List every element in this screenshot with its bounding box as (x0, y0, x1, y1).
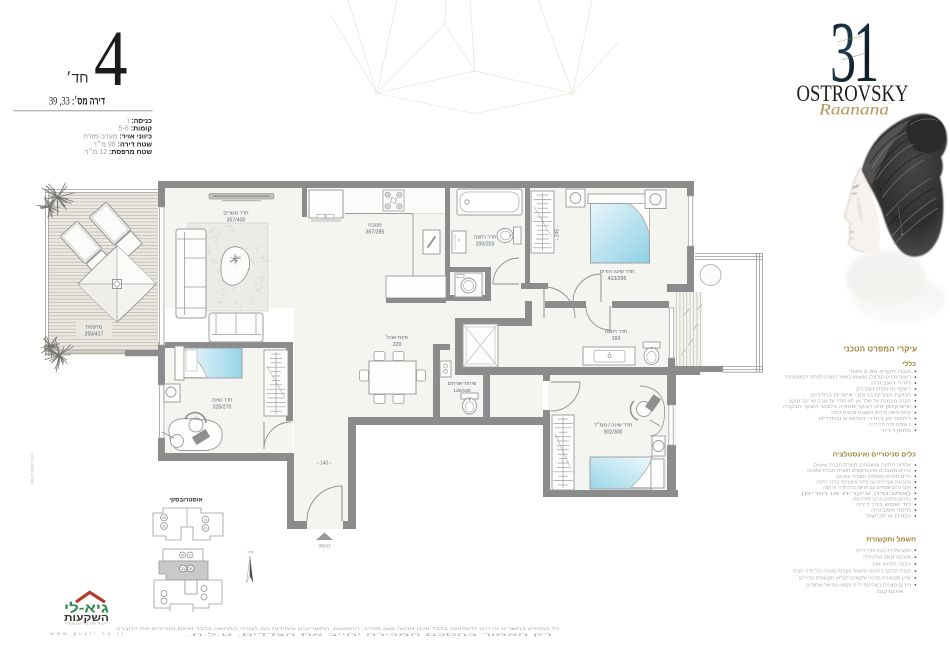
svg-text:39: 39 (189, 567, 193, 571)
svg-text:חדר שינה: חדר שינה (212, 398, 233, 404)
svg-text:שירותי אורחים: שירותי אורחים (448, 382, 477, 387)
svg-text:תקרה מונמכת על שלד עץ לא חודר: תקרה מונמכת על שלד עץ לא חודר עד גובה שר… (789, 398, 911, 403)
svg-text:חדר שינה / ממ״ד: חדר שינה / ממ״ד (594, 422, 632, 429)
svg-text:כיווני אויר: מערב-מזרח: כיווני אויר: מערב-מזרח (83, 134, 152, 141)
svg-text:כניסה: ו': כניסה: ו' (126, 118, 152, 125)
svg-text:גובה תקרה 2.90 מטר: גובה תקרה 2.90 מטר (849, 369, 911, 374)
svg-text:עיקרי המפרט הטכני: עיקרי המפרט הטכני (844, 345, 917, 354)
svg-text:- 245 -: - 245 - (555, 225, 561, 240)
svg-text:40: 40 (204, 527, 208, 531)
svg-text:קלות גישה נדרתו העגנות צבעות ב: קלות גישה נדרתו העגנות צבעות בחול (831, 410, 911, 415)
svg-text:220: 220 (393, 342, 402, 348)
svg-text:357/285: 357/285 (366, 230, 385, 236)
svg-text:אמבטיה אקרילית עם מילוי איזוטר: אמבטיה אקרילית עם מילוי איזוטרמי בחדר רח… (816, 479, 911, 484)
svg-text:קומות: 5-6: קומות: 5-6 (119, 126, 153, 133)
svg-text:הסקת תנורים ברוחבי איזורים בחד: הסקת תנורים ברוחבי איזורים בחדרים (811, 392, 911, 397)
svg-text:302/300: 302/300 (604, 430, 623, 436)
svg-text:357/400: 357/400 (227, 218, 246, 224)
svg-text:מרפסת: מרפסת (86, 325, 103, 331)
svg-text:אינטרקום טלויזיה: אינטרקום טלויזיה (863, 555, 911, 560)
svg-text:413/295: 413/295 (608, 276, 627, 282)
svg-text:חיפוי אמבטיה: חיפוי אמבטיה (871, 508, 911, 513)
svg-text:41: 41 (188, 554, 192, 558)
svg-text:ארון תקשורת מרכזי ותקאים לערוץ: ארון תקשורת מרכזי ותקאים לערוץ תקשורת הד… (799, 575, 911, 580)
svg-text:חשמל ותקשורת: חשמל ותקשורת (866, 536, 916, 544)
svg-text:ריצוף גרניט פורצלן 80x80 באזור: ריצוף גרניט פורצלן 80x80 באזור רגעים לפת… (785, 375, 912, 380)
svg-text:שטח מרפסת: 12 מ״ר: שטח מרפסת: 12 מ״ר (85, 148, 153, 156)
svg-text:2 עמדות חניה לכל דירה: 2 עמדות חניה לכל דירה (869, 422, 911, 427)
svg-text:נקודת גז לבישול: נקודת גז לבישול (866, 513, 911, 518)
svg-text:נקודת הדלקה בלוחות החשמל ונקוד: נקודת הדלקה בלוחות החשמל ונקודות טעינה ב… (793, 569, 911, 574)
svg-text:ברזים מעוצבים ואינטרפוצים תוצר: ברזים מעוצבים ואינטרפוצים תוצרת חברת Gro… (807, 468, 911, 473)
svg-text:חד׳: חד׳ (66, 70, 88, 86)
svg-text:שטח דירה: 98 מ״ר: שטח דירה: 98 מ״ר (93, 140, 152, 148)
svg-text:ארגז כלים שטוחים עם מראה בכל ח: ארגז כלים שטוחים עם מראה בכל חדרי הרחצה (823, 485, 911, 490)
svg-text:חירים מצויים בשליטת ידית וקטעי: חירים מצויים בשליטת ידית וקטעי גמישה אחו… (806, 582, 911, 587)
svg-text:דלתות עץ בחדרי המיגונים ובחדרי: דלתות עץ בחדרי המיגונים ובחדרים (819, 416, 912, 421)
svg-text:250/417: 250/417 (85, 332, 104, 338)
svg-text:38: 38 (162, 516, 166, 520)
svg-text:אוסטרובסקי: אוסטרובסקי (169, 498, 202, 504)
svg-text:״הבית שלך בידיים טובות״: ״הבית שלך בידיים טובות״ (65, 622, 109, 626)
svg-text:103-27-0339 תינכות: 103-27-0339 תינכות (31, 452, 35, 484)
svg-text:פינת אוכל: פינת אוכל (386, 334, 408, 341)
svg-text:חדר מגורים: חדר מגורים (223, 211, 248, 217)
svg-text:4: 4 (94, 15, 128, 102)
svg-text:325/270: 325/270 (213, 405, 232, 411)
svg-text:אינטרקום: אינטרקום (877, 589, 903, 594)
svg-text:כלים תלויים (אסלה) תוצרת Grohe: כלים תלויים (אסלה) תוצרת Grohe (836, 474, 912, 479)
svg-text:חדר רחצה: חדר רחצה (474, 235, 497, 241)
svg-text:36: 36 (162, 525, 166, 529)
svg-text:שיש קיסון איט הבקר אחורה בלבטי: שיש קיסון איט הבקר אחורה בלבטי העקד הבקר… (783, 404, 912, 409)
svg-text:כללי: כללי (902, 360, 916, 368)
svg-text:נקודת מים במרפסת והכנה לכונה ס: נקודת מים במרפסת והכנה לכונה סולארית כפו… (853, 496, 911, 501)
svg-text:Raanana: Raanana (818, 102, 890, 119)
svg-text:- 140 -: - 140 - (317, 461, 332, 467)
svg-text:תקע טלויזיה בכל חדר דירה: תקע טלויזיה בכל חדר דירה (856, 548, 911, 553)
svg-text:כלים סניטריים ואינסטלציה: כלים סניטריים ואינסטלציה (833, 451, 916, 459)
svg-text:200/203: 200/203 (476, 242, 495, 248)
svg-text:חדר שינה הורים: חדר שינה הורים (600, 269, 635, 275)
svg-text:כניסה: כניסה (318, 544, 331, 550)
svg-text:מטבח: מטבח (368, 223, 382, 229)
svg-text:מחסן דירתי: מחסן דירתי (881, 428, 911, 433)
svg-text:(אמבטיה עיקרית או הורים): (אמבטיה עיקרית או הורים) (801, 491, 912, 496)
svg-text:רק האמור בהסכם המכירה יחייב את: רק האמור בהסכם המכירה יחייב את הצדדים. ט… (187, 632, 552, 637)
svg-text:דוד שמש בכל דירה: דוד שמש בכל דירה (856, 502, 912, 507)
svg-text:33: 33 (181, 567, 185, 571)
svg-text:160: 160 (612, 336, 621, 342)
svg-text:35: 35 (181, 554, 185, 558)
svg-text:ריצוף מרתפת דגם דק: ריצוף מרתפת דגם דק (856, 387, 912, 392)
svg-text:אסלות תלויות ומשטחים תוצרת חבר: אסלות תלויות ומשטחים תוצרת חברת Grohe (813, 463, 911, 468)
svg-text:דירה מס׳: 33, 39: דירה מס׳: 33, 39 (49, 94, 105, 108)
svg-text:כל המופיע בתשריט זה הינו להמחש: כל המופיע בתשריט זה הינו להמחשה בלבד ואי… (116, 626, 559, 631)
svg-text:120/160: 120/160 (453, 388, 471, 394)
svg-text:הכנה למיזוג אויר: הכנה למיזוג אויר (871, 562, 911, 567)
svg-text:צפון: צפון (247, 550, 253, 554)
svg-text:חדר רחצה: חדר רחצה (605, 329, 628, 335)
svg-text:34: 34 (204, 518, 208, 522)
svg-text:חדר העבודה: חדר העבודה (871, 381, 911, 386)
